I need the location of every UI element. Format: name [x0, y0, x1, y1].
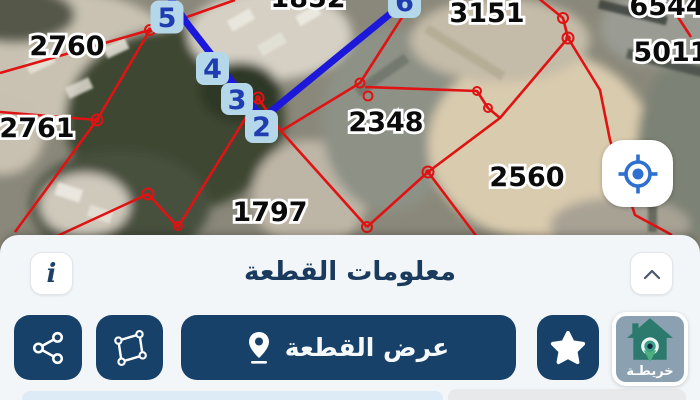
app-logo-tile: خريطـة	[616, 316, 684, 382]
parcel-label: 1852	[270, 0, 345, 14]
vertex-chip-label: 6	[395, 0, 414, 18]
parcel-label: 2760	[29, 31, 104, 62]
house-map-pin-icon	[625, 316, 675, 364]
chevron-up-icon	[643, 268, 661, 280]
app-logo-text: خريطـة	[626, 364, 673, 380]
parcel-label: 2560	[489, 162, 564, 193]
parcel-label: 1797	[232, 197, 307, 228]
sheet-title: معلومات القطعة	[0, 257, 700, 287]
parcel-label: 3151	[449, 0, 524, 29]
sheet-row-preview-primary	[22, 391, 443, 400]
star-icon	[549, 329, 587, 367]
gps-crosshair-icon	[617, 153, 659, 195]
polygon-select-button[interactable]	[96, 315, 163, 380]
share-icon	[30, 330, 66, 366]
app-screen: 2760 2761 1852 3151 6544 5011 2348 2560 …	[0, 0, 700, 400]
view-parcel-button[interactable]: عرض القطعة	[181, 315, 516, 380]
vertex-chip-label: 3	[228, 85, 247, 116]
vertex-chip: 2	[245, 110, 278, 143]
location-pin-icon	[248, 331, 270, 365]
share-button[interactable]	[14, 315, 82, 380]
parcel-label: 6544	[629, 0, 700, 22]
parcel-label: 5011	[633, 37, 700, 68]
parcel-info-sheet: i معلومات القطعة	[0, 235, 700, 400]
vertex-chip: 4	[196, 52, 229, 85]
parcel-label: 2348	[348, 107, 423, 138]
parcel-label: 2761	[0, 113, 75, 144]
vertex-chip: 3	[221, 83, 253, 116]
vertex-chip: 5	[151, 1, 184, 35]
favorite-button[interactable]	[537, 315, 599, 380]
polygon-icon	[111, 329, 149, 367]
vertex-chip-label: 5	[158, 3, 177, 34]
locate-me-button[interactable]	[602, 140, 673, 207]
view-parcel-label: عرض القطعة	[285, 333, 450, 362]
vertex-chip-label: 4	[203, 54, 222, 85]
satellite-map[interactable]: 2760 2761 1852 3151 6544 5011 2348 2560 …	[0, 0, 700, 245]
collapse-sheet-button[interactable]	[630, 252, 673, 295]
vertex-chip-label: 2	[252, 112, 271, 143]
vertex-chip: 6	[388, 0, 421, 18]
app-logo: خريطـة	[612, 312, 688, 386]
sheet-row-preview-secondary	[448, 389, 686, 400]
